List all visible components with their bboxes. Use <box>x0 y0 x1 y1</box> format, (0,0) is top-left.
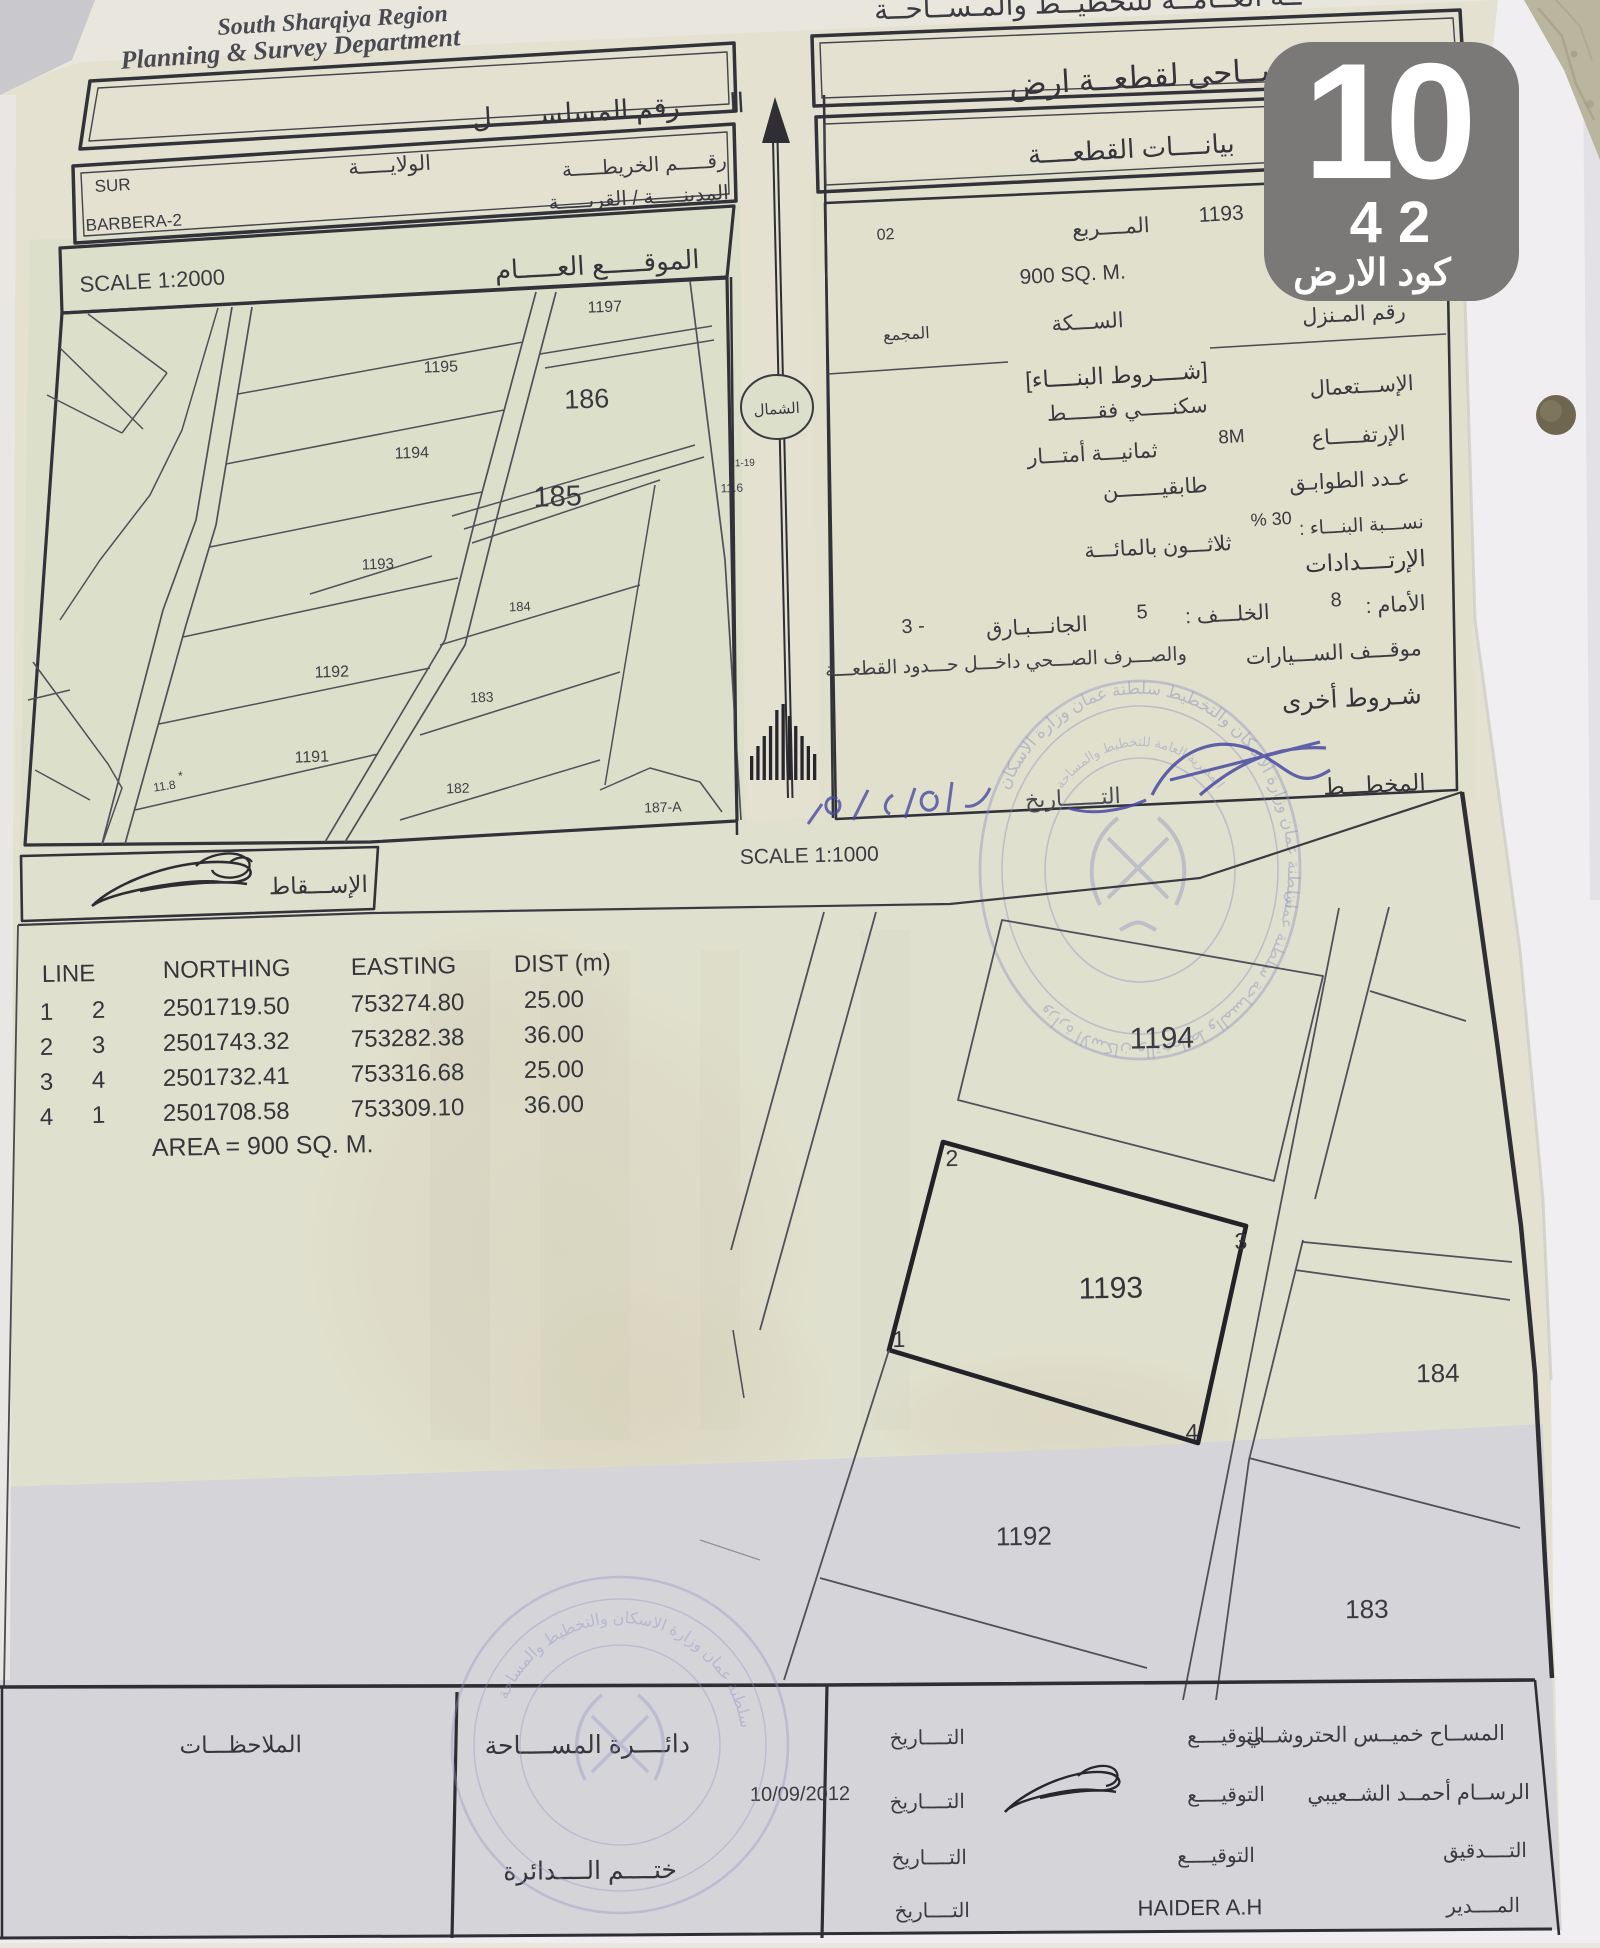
svg-text:02: 02 <box>876 226 895 244</box>
svg-text:كود الارض: كود الارض <box>1293 252 1452 295</box>
svg-text:3: 3 <box>40 1069 54 1096</box>
svg-text:EASTING: EASTING <box>351 952 457 981</box>
svg-text:4: 4 <box>1185 1419 1198 1445</box>
svg-text:1-19: 1-19 <box>735 458 756 470</box>
svg-text:183: 183 <box>470 689 494 706</box>
svg-text:2: 2 <box>945 1145 958 1171</box>
svg-text:8: 8 <box>1330 589 1342 612</box>
svg-text:التوقيــــع: التوقيــــع <box>1177 1845 1255 1868</box>
svg-text:% 30: % 30 <box>1250 508 1292 530</box>
svg-text:AREA = 900 SQ. M.: AREA = 900 SQ. M. <box>152 1130 374 1162</box>
svg-text:1191: 1191 <box>294 748 329 766</box>
svg-text:36.00: 36.00 <box>524 1021 585 1049</box>
svg-text:4: 4 <box>40 1104 54 1131</box>
svg-text:الإســـقاط: الإســـقاط <box>269 871 369 901</box>
svg-text:753274.80: 753274.80 <box>351 989 465 1018</box>
svg-text:SCALE 1:1000: SCALE 1:1000 <box>740 843 879 869</box>
svg-text:4 2: 4 2 <box>1350 190 1431 255</box>
svg-text:التــــدقيق: التــــدقيق <box>1443 1840 1527 1863</box>
svg-text:25.00: 25.00 <box>524 1056 585 1084</box>
svg-text:التوقيــــع: التوقيــــع <box>1187 1784 1265 1807</box>
svg-text:دائــــرة المســــاحة: دائــــرة المســــاحة <box>485 1730 691 1761</box>
svg-text:1195: 1195 <box>423 358 458 376</box>
svg-text:1197: 1197 <box>587 298 622 316</box>
svg-text:753316.68: 753316.68 <box>351 1059 465 1088</box>
svg-text:184: 184 <box>1416 1358 1460 1389</box>
svg-text:1: 1 <box>40 999 54 1026</box>
svg-text:2501732.41: 2501732.41 <box>163 1063 290 1092</box>
svg-text:LINE: LINE <box>42 960 96 988</box>
svg-text:3 -: 3 - <box>901 615 925 638</box>
svg-text:SUR: SUR <box>94 175 131 196</box>
svg-text:2501708.58: 2501708.58 <box>163 1098 290 1127</box>
svg-text:8M: 8M <box>1218 426 1246 448</box>
svg-text:10: 10 <box>1303 29 1470 213</box>
svg-text:التــــاريخ: التــــاريخ <box>891 1847 967 1870</box>
svg-text:1194: 1194 <box>394 444 429 462</box>
svg-text:2: 2 <box>40 1034 54 1061</box>
svg-text:2501719.50: 2501719.50 <box>163 993 290 1022</box>
svg-text:3: 3 <box>1234 1228 1247 1254</box>
svg-text:*: * <box>178 769 183 783</box>
svg-text:185: 185 <box>533 480 582 514</box>
svg-text:DIST (m): DIST (m) <box>514 949 611 978</box>
svg-text:1: 1 <box>892 1326 905 1352</box>
svg-text:المجمع: المجمع <box>883 325 931 345</box>
svg-text:753282.38: 753282.38 <box>351 1024 465 1053</box>
svg-text:4: 4 <box>92 1067 106 1094</box>
svg-text:التــــاريخ: التــــاريخ <box>889 1791 965 1814</box>
svg-text:3: 3 <box>92 1032 106 1059</box>
svg-text:183: 183 <box>1345 1594 1389 1625</box>
svg-text:10/09/2012: 10/09/2012 <box>750 1783 850 1806</box>
svg-text:NORTHING: NORTHING <box>163 955 291 984</box>
svg-text:الخلـــف :: الخلـــف : <box>1185 601 1271 628</box>
svg-text:الســـكة: الســـكة <box>1051 309 1124 336</box>
svg-text:الشمال: الشمال <box>753 400 800 419</box>
svg-text:1194: 1194 <box>1129 1021 1194 1055</box>
svg-text:الملاحظـــات: الملاحظـــات <box>179 1731 302 1758</box>
svg-text:المخطـــط: المخطـــط <box>1323 769 1427 800</box>
svg-text:36.00: 36.00 <box>524 1091 585 1119</box>
svg-text:التــــاريخ: التــــاريخ <box>894 1900 970 1923</box>
svg-text:HAIDER A.H: HAIDER A.H <box>1137 1894 1262 1920</box>
svg-text:25.00: 25.00 <box>524 986 585 1014</box>
svg-text:5: 5 <box>1136 601 1148 624</box>
svg-text:التــــاريخ: التــــاريخ <box>889 1727 965 1750</box>
svg-text:182: 182 <box>446 780 470 797</box>
svg-text:المــــدير: المــــدير <box>1445 1895 1520 1918</box>
svg-text:1193: 1193 <box>1078 1271 1143 1305</box>
svg-text:186: 186 <box>564 383 610 415</box>
svg-text:المســاح خميــس الحتروشــي: المســاح خميــس الحتروشــي <box>1246 1722 1505 1749</box>
svg-text:2501743.32: 2501743.32 <box>163 1028 290 1057</box>
svg-text:753309.10: 753309.10 <box>351 1094 465 1123</box>
svg-text:1192: 1192 <box>996 1521 1052 1552</box>
svg-text:1193: 1193 <box>1198 202 1244 227</box>
svg-text:1192: 1192 <box>314 663 349 681</box>
svg-text:2: 2 <box>92 997 106 1024</box>
svg-text:187-A: 187-A <box>644 798 683 815</box>
svg-text:1: 1 <box>92 1102 106 1129</box>
svg-text:184: 184 <box>509 599 531 615</box>
svg-text:1193: 1193 <box>361 555 394 573</box>
svg-text:التوقيــــع: التوقيــــع <box>1187 1725 1265 1748</box>
svg-text:ختــــم الــــدائرة: ختــــم الــــدائرة <box>503 1856 677 1887</box>
